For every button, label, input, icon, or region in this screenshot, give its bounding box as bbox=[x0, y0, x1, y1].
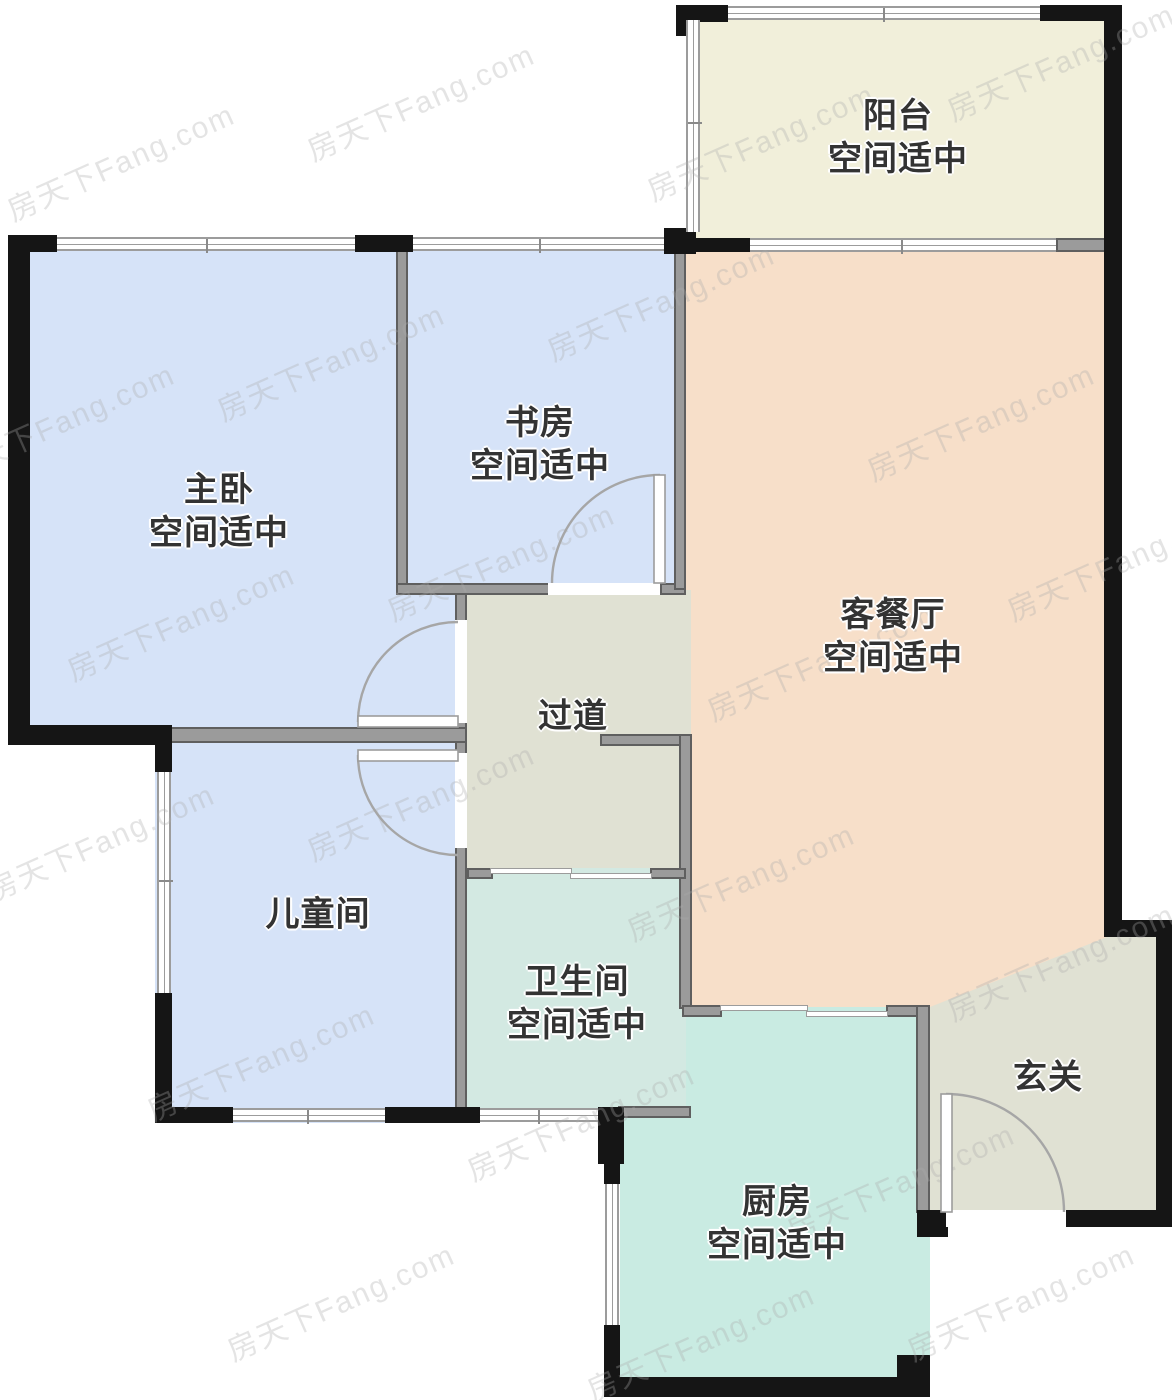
sliding-door bbox=[720, 1005, 808, 1011]
wall bbox=[674, 250, 686, 590]
wall bbox=[604, 1377, 930, 1397]
room-status: 空间适中 bbox=[149, 512, 289, 555]
wall bbox=[897, 1355, 930, 1380]
wall bbox=[682, 1005, 722, 1017]
room-name: 过道 bbox=[538, 696, 608, 739]
door-opening bbox=[455, 753, 467, 848]
floor-plan: 阳台 空间适中 书房 空间适中 主卧 空间适中 客餐厅 空间适中 过道 儿童间 … bbox=[0, 0, 1172, 1400]
room-status: 空间适中 bbox=[707, 1224, 847, 1267]
window bbox=[728, 6, 1040, 20]
wall bbox=[166, 727, 467, 743]
wall bbox=[650, 868, 686, 879]
wall bbox=[600, 734, 691, 746]
watermark-text: 房天下Fang.com bbox=[299, 30, 541, 170]
room-name: 卫生间 bbox=[525, 961, 630, 1004]
room-label-kitchen: 厨房 空间适中 bbox=[707, 1181, 847, 1267]
wall bbox=[155, 740, 172, 772]
wall bbox=[1156, 935, 1172, 1227]
room-label-children-room: 儿童间 bbox=[266, 894, 371, 937]
window bbox=[605, 1184, 619, 1325]
wall bbox=[155, 993, 172, 1123]
watermark-text: 房天下Fang.com bbox=[899, 1230, 1141, 1370]
room-status: 空间适中 bbox=[507, 1004, 647, 1047]
wall bbox=[396, 583, 550, 595]
room-label-balcony: 阳台 空间适中 bbox=[828, 95, 968, 181]
wall bbox=[455, 846, 467, 1110]
wall bbox=[688, 238, 750, 252]
window bbox=[157, 772, 171, 993]
sliding-door bbox=[806, 1011, 888, 1017]
wall bbox=[455, 593, 467, 622]
wall bbox=[8, 235, 57, 252]
window bbox=[750, 238, 1056, 252]
wall bbox=[1056, 238, 1106, 252]
room-status: 空间适中 bbox=[823, 637, 963, 680]
room-status: 空间适中 bbox=[828, 138, 968, 181]
sliding-door bbox=[490, 868, 572, 874]
wall bbox=[916, 1005, 930, 1213]
wall bbox=[618, 1106, 691, 1118]
wall bbox=[8, 725, 172, 745]
room-label-hallway: 过道 bbox=[538, 696, 608, 739]
door-opening bbox=[548, 583, 660, 595]
window bbox=[57, 237, 355, 251]
door-opening bbox=[455, 620, 467, 723]
window bbox=[413, 237, 664, 251]
room-name: 儿童间 bbox=[266, 894, 371, 937]
room-name: 阳台 bbox=[863, 95, 933, 138]
wall bbox=[8, 235, 30, 745]
room-name: 客餐厅 bbox=[841, 594, 946, 637]
room-name: 书房 bbox=[505, 402, 575, 445]
window bbox=[686, 20, 700, 232]
wall bbox=[355, 235, 413, 252]
window bbox=[233, 1108, 385, 1122]
wall bbox=[917, 1210, 948, 1237]
sliding-door bbox=[570, 873, 652, 879]
window bbox=[480, 1108, 598, 1122]
watermark-text: 房天下Fang.com bbox=[0, 90, 241, 230]
door-opening bbox=[946, 1210, 1066, 1227]
wall bbox=[1104, 5, 1122, 937]
room-label-bathroom: 卫生间 空间适中 bbox=[507, 961, 647, 1047]
wall bbox=[155, 1107, 233, 1123]
wall bbox=[385, 1107, 480, 1123]
wall bbox=[604, 1160, 620, 1184]
room-name: 玄关 bbox=[1013, 1057, 1083, 1100]
room-name: 主卧 bbox=[184, 469, 254, 512]
room-label-master-bedroom: 主卧 空间适中 bbox=[149, 469, 289, 555]
room-status: 空间适中 bbox=[470, 445, 610, 488]
room-label-living-dining: 客餐厅 空间适中 bbox=[823, 594, 963, 680]
room-label-entry: 玄关 bbox=[1013, 1057, 1083, 1100]
wall bbox=[1064, 1210, 1172, 1227]
room-name: 厨房 bbox=[742, 1181, 812, 1224]
watermark-text: 房天下Fang.com bbox=[219, 1230, 461, 1370]
wall bbox=[396, 250, 408, 595]
wall bbox=[598, 1107, 624, 1164]
room-label-study: 书房 空间适中 bbox=[470, 402, 610, 488]
